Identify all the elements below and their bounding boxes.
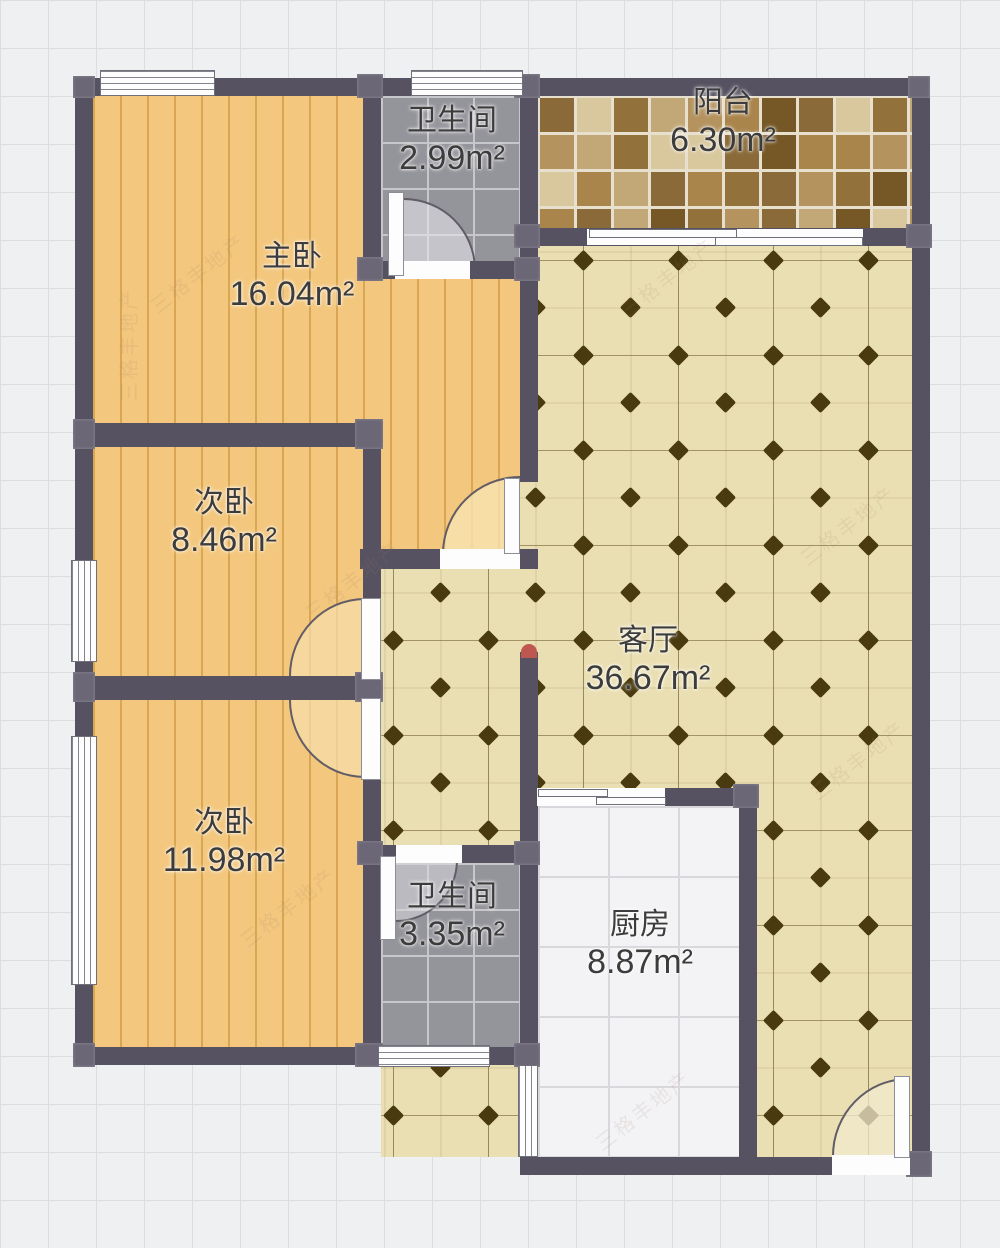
balcony-mosaic-tile <box>836 98 870 132</box>
wall-cap <box>906 224 932 248</box>
floor-tile-diamond <box>477 819 498 840</box>
bathroom-bottom-door-leaf <box>380 856 396 940</box>
floor-tile-diamond <box>810 487 831 508</box>
label-kitchen: 厨房 8.87m² <box>587 908 693 982</box>
floor-tile-diamond <box>620 297 641 318</box>
floor-tile-diamond <box>762 629 783 650</box>
balcony-mosaic-tile <box>577 135 611 169</box>
room-name: 次卧 <box>163 806 285 840</box>
balcony-mosaic-tile <box>836 135 870 169</box>
wall-bedrooms-divider <box>75 676 381 700</box>
window-bedroom-2-left <box>71 560 97 662</box>
room-name: 卫生间 <box>399 880 505 914</box>
balcony-mosaic-tile <box>540 98 574 132</box>
floor-tile-diamond <box>857 439 878 460</box>
bathroom-bottom-door-opening <box>396 845 462 863</box>
balcony-mosaic-tile <box>836 172 870 206</box>
floor-tile-diamond <box>857 724 878 745</box>
floor-tile-diamond <box>715 487 736 508</box>
wall-cap <box>733 784 759 808</box>
room-name: 厨房 <box>587 908 693 942</box>
floor-tile-diamond <box>525 487 546 508</box>
wall-bathroom-top-left <box>363 96 381 279</box>
floor-tile-diamond <box>667 439 688 460</box>
entrance-door-opening <box>832 1155 910 1175</box>
floor-tile-diamond <box>620 582 641 603</box>
wall-cap <box>514 224 540 248</box>
wall-cap <box>73 419 95 449</box>
balcony-mosaic-tile <box>688 172 722 206</box>
label-living-room: 客厅 36.67m² <box>586 624 711 698</box>
wall-cap <box>355 419 383 449</box>
floor-tile-diamond <box>762 724 783 745</box>
floor-tile-diamond <box>572 534 593 555</box>
balcony-mosaic-tile <box>762 172 796 206</box>
floor-tile-diamond <box>857 344 878 365</box>
balcony-mosaic-tile <box>873 98 907 132</box>
floor-tile-diamond <box>810 677 831 698</box>
floor-tile-diamond <box>572 249 593 270</box>
wall-master-right <box>520 96 538 482</box>
balcony-mosaic-tile <box>873 135 907 169</box>
balcony-mosaic-tile <box>651 172 685 206</box>
floor-tile-diamond <box>430 582 451 603</box>
floor-tile-diamond <box>810 297 831 318</box>
wall-cap <box>357 257 383 281</box>
room-area: 6.30m² <box>670 120 776 160</box>
window-bathroom-bottom <box>378 1045 490 1067</box>
floor-tile-diamond <box>810 1057 831 1078</box>
floor-tile-diamond <box>477 629 498 650</box>
wall-master-bottom <box>75 423 381 447</box>
room-area: 3.35m² <box>399 914 505 954</box>
room-area: 8.46m² <box>171 520 277 560</box>
wall-stub-end-cap <box>521 644 537 658</box>
floor-tile-diamond <box>857 914 878 935</box>
wall-cap <box>514 257 540 281</box>
balcony-mosaic-tile <box>725 172 759 206</box>
floor-tile-diamond <box>572 439 593 460</box>
window-master-top <box>100 70 215 96</box>
balcony-mosaic-tile <box>614 172 648 206</box>
floor-tile-diamond <box>857 534 878 555</box>
floor-tile-diamond <box>382 629 403 650</box>
floor-tile-diamond <box>620 392 641 413</box>
room-area: 2.99m² <box>399 138 505 178</box>
floor-tile-diamond <box>572 724 593 745</box>
label-bedroom-3: 次卧 11.98m² <box>163 806 285 880</box>
wall-kitchen-right <box>739 788 757 1157</box>
balcony-sliding-door-panel-right <box>715 237 863 246</box>
floor-tile-diamond <box>762 439 783 460</box>
label-bathroom-bottom: 卫生间 3.35m² <box>399 880 505 954</box>
floor-tile-diamond <box>715 297 736 318</box>
floor-tile-diamond <box>762 914 783 935</box>
balcony-mosaic-tile <box>577 98 611 132</box>
room-name: 客厅 <box>586 624 711 658</box>
balcony-mosaic-tile <box>540 135 574 169</box>
entrance-door-leaf <box>894 1076 910 1158</box>
floor-tile-diamond <box>762 249 783 270</box>
floor-tile-diamond <box>667 249 688 270</box>
room-area: 11.98m² <box>163 840 285 880</box>
floor-tile-diamond <box>525 582 546 603</box>
floor-tile-diamond <box>667 534 688 555</box>
floor-tile-diamond <box>810 582 831 603</box>
window-bathroom-top <box>411 70 523 96</box>
kitchen-sliding-door-panel-right <box>596 797 666 805</box>
kitchen-sliding-door-panel-left <box>538 789 608 797</box>
floor-tile-diamond <box>477 1104 498 1125</box>
floor-plan-canvas: { "rooms": [ {"id": "master-bedroom", "n… <box>0 0 1000 1248</box>
balcony-mosaic-tile <box>799 98 833 132</box>
bedroom-2-door-leaf <box>361 598 381 680</box>
room-name: 阳台 <box>670 86 776 120</box>
label-balcony: 阳台 6.30m² <box>670 86 776 160</box>
wall-cap <box>357 74 383 98</box>
room-name: 次卧 <box>171 486 277 520</box>
balcony-mosaic-tile <box>614 135 648 169</box>
room-area: 16.04m² <box>230 274 355 314</box>
window-kitchen-left <box>518 1065 538 1157</box>
room-area: 8.87m² <box>587 942 693 982</box>
label-master-bedroom: 主卧 16.04m² <box>230 240 355 314</box>
floor-tile-diamond <box>382 724 403 745</box>
floor-tile-diamond <box>810 392 831 413</box>
floor-tile-diamond <box>382 819 403 840</box>
bedroom-3-door-leaf <box>361 698 381 780</box>
floor-tile-diamond <box>857 249 878 270</box>
floor-tile-diamond <box>762 1009 783 1030</box>
balcony-mosaic-tile <box>873 172 907 206</box>
wall-cap <box>908 76 930 98</box>
floor-tile-diamond <box>857 1009 878 1030</box>
floor-tile-diamond <box>430 677 451 698</box>
balcony-mosaic-tile <box>614 98 648 132</box>
balcony-mosaic-tile <box>540 172 574 206</box>
bathroom-top-door-leaf <box>388 192 404 276</box>
wall-cap <box>514 1043 540 1067</box>
floor-tile-diamond <box>620 487 641 508</box>
label-bathroom-top: 卫生间 2.99m² <box>399 104 505 178</box>
floor-tile-diamond <box>715 677 736 698</box>
window-bedroom-3-left <box>71 736 97 985</box>
room-name: 主卧 <box>230 240 355 274</box>
bathroom-top-door-opening <box>395 261 470 279</box>
floor-tile-diamond <box>762 534 783 555</box>
wall-cap <box>73 1043 95 1067</box>
floor-tile-diamond <box>667 344 688 365</box>
floor-tile-diamond <box>430 772 451 793</box>
floor-tile-diamond <box>715 392 736 413</box>
floor-tile-diamond <box>572 344 593 365</box>
master-bedroom-door-leaf <box>504 478 520 554</box>
room-name: 卫生间 <box>399 104 505 138</box>
wall-cap <box>514 841 540 865</box>
floor-tile-diamond <box>762 819 783 840</box>
floor-tile-diamond <box>667 724 688 745</box>
floor-tile-diamond <box>857 629 878 650</box>
balcony-mosaic-tile <box>577 172 611 206</box>
room-area: 36.67m² <box>586 658 711 698</box>
wall-cap <box>73 672 95 702</box>
floor-tile-diamond <box>715 582 736 603</box>
floor-tile-diamond <box>477 724 498 745</box>
balcony-mosaic-tile <box>799 172 833 206</box>
floor-tile-diamond <box>762 1104 783 1125</box>
floor-tile-diamond <box>762 344 783 365</box>
balcony-mosaic-tile <box>799 135 833 169</box>
floor-tile-diamond <box>810 962 831 983</box>
wall-cap <box>73 76 95 98</box>
floor-tile-diamond <box>382 1104 403 1125</box>
floor-tile-diamond <box>857 819 878 840</box>
floor-tile-diamond <box>810 772 831 793</box>
label-bedroom-2: 次卧 8.46m² <box>171 486 277 560</box>
floor-tile-diamond <box>810 867 831 888</box>
